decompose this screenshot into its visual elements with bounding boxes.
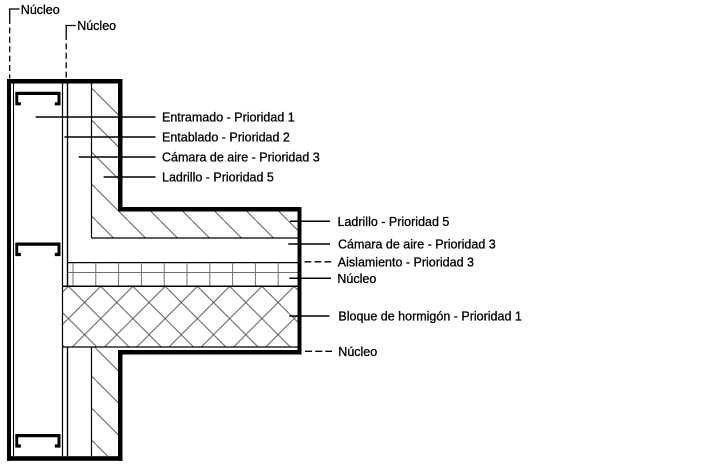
svg-text:Núcleo: Núcleo — [338, 345, 377, 359]
svg-text:Aislamiento - Prioridad 3: Aislamiento - Prioridad 3 — [338, 255, 474, 269]
svg-text:Núcleo: Núcleo — [77, 19, 116, 33]
svg-text:Núcleo: Núcleo — [21, 3, 60, 17]
svg-text:Núcleo: Núcleo — [337, 272, 376, 286]
svg-text:Ladrillo - Prioridad 5: Ladrillo - Prioridad 5 — [338, 215, 450, 229]
svg-text:Entablado - Prioridad 2: Entablado - Prioridad 2 — [162, 131, 290, 145]
svg-text:Ladrillo - Prioridad 5: Ladrillo - Prioridad 5 — [162, 171, 274, 185]
svg-text:Cámara de aire - Prioridad 3: Cámara de aire - Prioridad 3 — [162, 151, 320, 165]
svg-text:Entramado - Prioridad 1: Entramado - Prioridad 1 — [162, 111, 295, 125]
svg-text:Bloque de hormigón - Prioridad: Bloque de hormigón - Prioridad 1 — [338, 310, 521, 324]
svg-text:Cámara de aire - Prioridad 3: Cámara de aire - Prioridad 3 — [338, 238, 496, 252]
